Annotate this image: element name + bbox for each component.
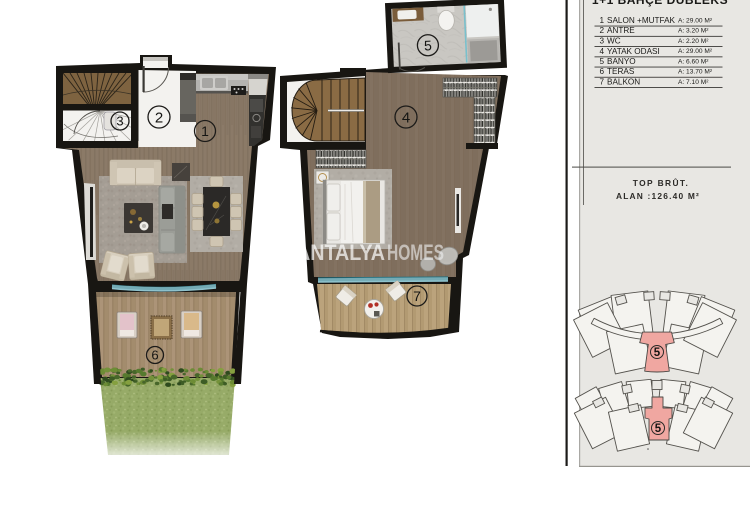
svg-text:7: 7 [413, 288, 421, 304]
svg-text:5: 5 [599, 57, 604, 66]
svg-text:1: 1 [201, 123, 209, 139]
svg-text:6: 6 [151, 348, 158, 363]
svg-text:1+1 BAHÇE DUBLEKS: 1+1 BAHÇE DUBLEKS [592, 0, 728, 7]
svg-text:TERAS: TERAS [607, 67, 635, 76]
svg-text:4: 4 [599, 47, 604, 56]
svg-text:A: 6.60 M²: A: 6.60 M² [678, 58, 709, 65]
svg-text:A: 7.10 M²: A: 7.10 M² [678, 79, 709, 86]
svg-text:5: 5 [654, 347, 661, 359]
svg-text:A: 3.20 M²: A: 3.20 M² [678, 28, 709, 35]
svg-text:6: 6 [599, 67, 604, 76]
svg-text:4: 4 [402, 109, 410, 126]
svg-text:ANTRE: ANTRE [607, 26, 635, 35]
svg-text:YATAK ODASI: YATAK ODASI [607, 47, 660, 56]
svg-text:A: 2.20 M²: A: 2.20 M² [678, 38, 709, 45]
svg-text:A: 13.70 M²: A: 13.70 M² [678, 69, 713, 76]
svg-text:BANYO: BANYO [607, 57, 636, 66]
svg-text:A: 29.00 M²: A: 29.00 M² [678, 48, 713, 55]
svg-text:BALKON: BALKON [607, 78, 640, 87]
svg-text:SALON +MUTFAK: SALON +MUTFAK [607, 16, 676, 25]
svg-text:2: 2 [155, 109, 163, 126]
svg-text:HOMES: HOMES [387, 240, 444, 265]
svg-text:7: 7 [599, 78, 604, 87]
svg-text:ANTALYA: ANTALYA [296, 240, 385, 265]
svg-text:ALAN :126.40 M²: ALAN :126.40 M² [616, 191, 700, 201]
svg-text:A: 29.00 M²: A: 29.00 M² [678, 17, 713, 24]
svg-text:3: 3 [116, 114, 123, 129]
svg-text:1: 1 [599, 16, 604, 25]
svg-text:TOP BRÛT.: TOP BRÛT. [633, 177, 690, 188]
svg-text:3: 3 [599, 37, 604, 46]
svg-text:5: 5 [655, 423, 662, 435]
svg-text:WC: WC [607, 37, 621, 46]
svg-text:2: 2 [599, 26, 604, 35]
svg-text:5: 5 [424, 37, 433, 53]
